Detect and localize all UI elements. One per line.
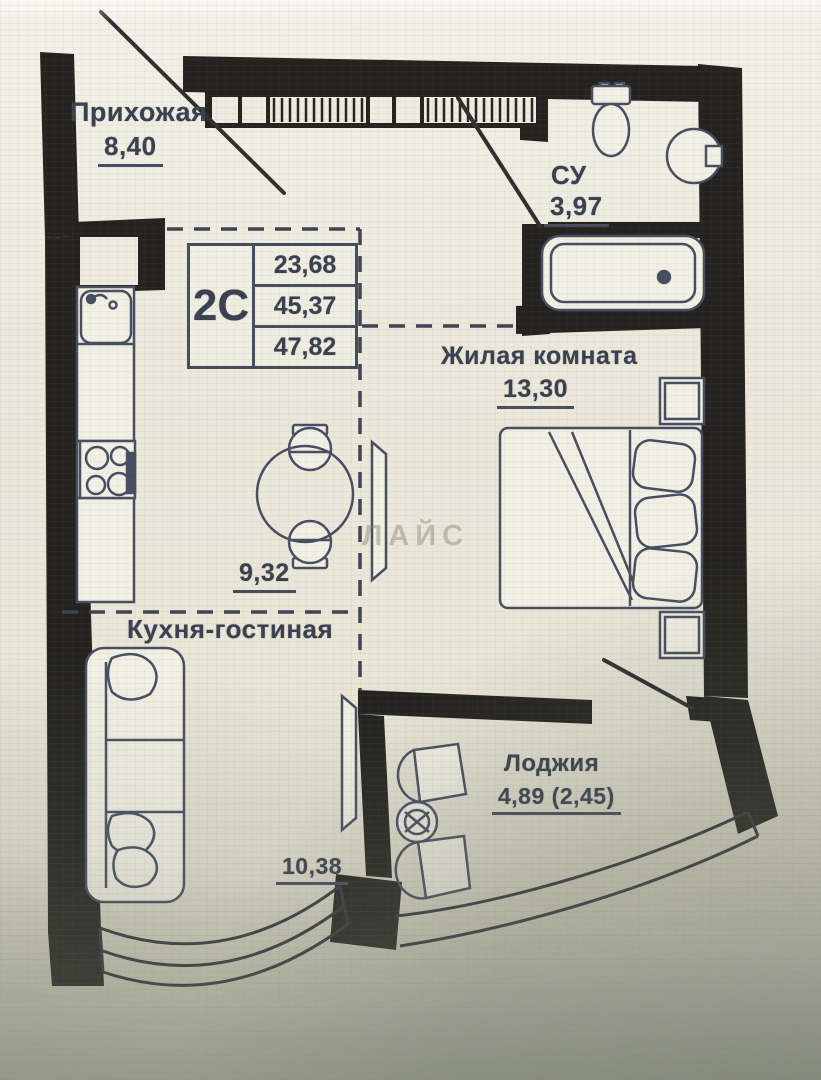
nightstand-top: [660, 378, 704, 424]
living-room-area: 13,30: [497, 375, 574, 409]
loggia-chair-bottom: [396, 836, 470, 898]
hallway-area: 8,40: [98, 131, 163, 167]
stove: [80, 441, 135, 498]
kitchen-living-label: Кухня-гостиная: [127, 614, 333, 645]
wardrobe: [205, 92, 545, 128]
partition-panel-loggia: [342, 696, 356, 830]
sofa: [86, 648, 184, 902]
loggia-door-swing: [604, 660, 692, 708]
kitchen-sink: [81, 291, 131, 343]
floorplan-photo: Прихожая 8,40 СУ 3,97 2С 23,68 45,37 47,…: [0, 0, 821, 1080]
watermark-text: ЛАЙС: [362, 520, 469, 553]
bathroom-label: СУ: [551, 160, 587, 191]
loggia-chair-top: [398, 744, 466, 802]
loggia-label: Лоджия: [504, 750, 599, 778]
bathroom-area: 3,97: [544, 191, 609, 227]
loggia-table: [397, 802, 437, 842]
nightstand-bottom: [660, 612, 704, 658]
unit-area-row: 47,82: [255, 325, 355, 366]
unit-area-row: 45,37: [255, 284, 355, 325]
bathroom-sink: [667, 129, 722, 183]
unit-info-table: 2С 23,68 45,37 47,82: [187, 243, 358, 369]
hallway-label: Прихожая: [70, 97, 207, 128]
kitchen-zone-area: 9,32: [233, 559, 296, 593]
living-room-label: Жилая комната: [441, 342, 638, 371]
bed: [500, 428, 702, 608]
bathtub: [542, 236, 704, 310]
loggia-area: 4,89 (2,45): [492, 783, 621, 815]
toilet: [592, 83, 630, 156]
vent-shaft: [80, 237, 138, 285]
unit-area-row: 23,68: [255, 246, 355, 284]
living-zone-area: 10,38: [276, 853, 348, 885]
unit-type: 2С: [190, 246, 255, 366]
partition-panel-living: [372, 442, 386, 580]
